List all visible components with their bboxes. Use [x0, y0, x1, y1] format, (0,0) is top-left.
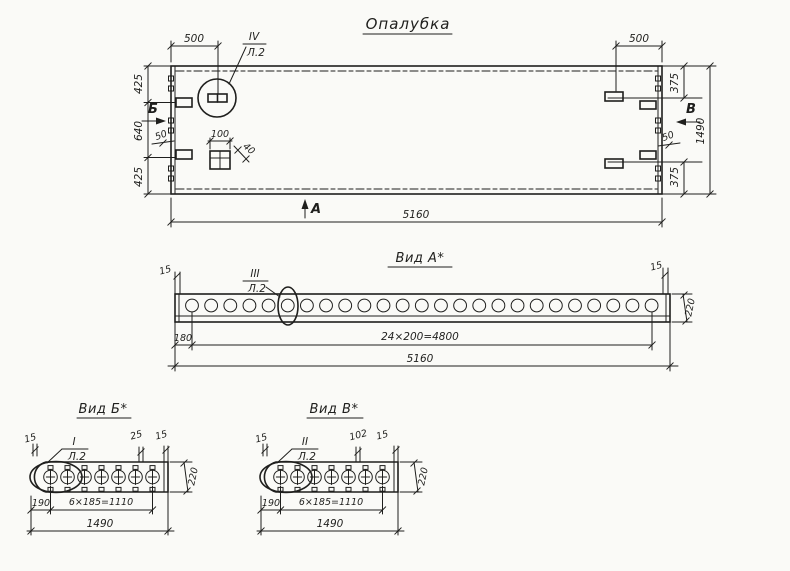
bolt-nub [116, 487, 121, 491]
view-a: Вид А* III Л.2 15 15 220 180 24×200=4800… [158, 251, 698, 365]
view-v-dim-102: 102 [348, 428, 368, 443]
view-marker-v-label: В [686, 102, 696, 117]
bolt-nub [133, 466, 138, 470]
hole [281, 299, 294, 312]
fixture-right-lower [605, 159, 623, 168]
dim-5160-plan: 5160 [403, 209, 430, 221]
dim-375-top: 375 [669, 73, 681, 93]
hole [262, 299, 275, 312]
callout-ii-sheet: Л.2 [297, 451, 316, 463]
hole [454, 299, 467, 312]
plan-view: IV Л.2 500 500 425 640 425 375 375 1490 … [133, 31, 707, 221]
view-a-holes [186, 299, 658, 312]
bolt-nub [380, 466, 385, 470]
bolt-nub [48, 466, 53, 470]
callout-i-number: I [72, 436, 75, 448]
hole [205, 299, 218, 312]
dim-640-mid: 640 [133, 121, 145, 141]
hole [473, 299, 486, 312]
view-v-title: Вид В* [310, 402, 359, 417]
dim-tick [683, 318, 689, 324]
dim-50-right: 50 [661, 129, 676, 143]
hole [626, 299, 639, 312]
bolt-nub [150, 466, 155, 470]
view-a-strip [175, 294, 670, 322]
view-v-dim-15-right: 15 [375, 429, 390, 443]
hole [339, 299, 352, 312]
hole [607, 299, 620, 312]
hole [320, 299, 333, 312]
view-a-dim-spacing: 24×200=4800 [381, 331, 459, 343]
bolt-nub [278, 466, 283, 470]
hole [243, 299, 256, 312]
fixture-left-upper [176, 98, 192, 107]
hole [358, 299, 371, 312]
dim-375-bottom: 375 [669, 167, 681, 187]
dim-tick [414, 488, 420, 494]
hole [377, 299, 390, 312]
bolt-nub [133, 487, 138, 491]
callout-iv-sheet: Л.2 [246, 47, 265, 59]
hole [186, 299, 199, 312]
fixture-right-lower-edge [640, 151, 656, 159]
hole [530, 299, 543, 312]
dim-line [266, 287, 280, 297]
bolt-nub [295, 466, 300, 470]
fixture-right-upper-edge [640, 101, 656, 109]
dim-1490-right: 1490 [695, 117, 707, 144]
hole [511, 299, 524, 312]
view-marker-b-arrow [156, 118, 166, 125]
hole [645, 299, 658, 312]
dim-500-left: 500 [184, 33, 204, 45]
view-b-dim-190: 190 [32, 498, 50, 509]
view-v-holes [274, 466, 390, 492]
dim-tick [681, 292, 687, 298]
view-b-holes [44, 466, 160, 492]
callout-iii-number: III [250, 268, 259, 280]
view-b-dim-220: 220 [186, 466, 201, 486]
bolt-nub [346, 466, 351, 470]
view-b-dim-1490: 1490 [87, 518, 114, 530]
bolt-nub [99, 466, 104, 470]
dim-500-right: 500 [629, 33, 649, 45]
view-marker-a-arrow [302, 199, 309, 209]
fixture-left-lower [176, 150, 192, 159]
dim-425-bottom: 425 [133, 167, 145, 187]
bolt-nub [363, 487, 368, 491]
bolt-nub [82, 466, 87, 470]
view-a-dim-220: 220 [683, 297, 698, 317]
view-a-dim-15-left: 15 [158, 264, 173, 278]
bolt-nub [65, 466, 70, 470]
drawing-title: Опалубка [366, 15, 451, 33]
hole [415, 299, 428, 312]
hole [569, 299, 582, 312]
bolt-nub [363, 466, 368, 470]
view-v-dim-15-left: 15 [254, 432, 269, 446]
bolt-nub [82, 487, 87, 491]
fixture-right-upper [605, 92, 623, 101]
view-v-dim-190: 190 [262, 498, 280, 509]
bolt-nub [329, 487, 334, 491]
formwork-outline [171, 66, 662, 194]
dim-425-top: 425 [133, 74, 145, 94]
view-marker-a-label: А [310, 202, 321, 217]
bolt-nub [312, 487, 317, 491]
dim-50-left: 50 [154, 128, 169, 142]
view-v-dim-1490: 1490 [317, 518, 344, 530]
view-a-dim-180: 180 [174, 333, 192, 344]
hole [492, 299, 505, 312]
bolt-nub [99, 487, 104, 491]
drawing-canvas: Опалубка IV Л.2 500 500 425 640 425 375 … [0, 0, 790, 571]
linework [27, 41, 716, 535]
hole [549, 299, 562, 312]
bolt-nub [346, 487, 351, 491]
view-v-dim-220: 220 [416, 466, 431, 486]
callout-iii-sheet: Л.2 [247, 283, 266, 295]
view-a-dim-15-right: 15 [649, 260, 664, 274]
bolt-nub [116, 466, 121, 470]
dim-tick [184, 488, 190, 494]
dim-100: 100 [211, 129, 229, 140]
view-a-title: Вид А* [396, 251, 445, 266]
view-b-dim-15-right: 15 [154, 429, 169, 443]
view-b-dim-spacing: 6×185=1110 [69, 497, 133, 508]
callout-i-sheet: Л.2 [67, 451, 86, 463]
view-marker-v-arrow [676, 119, 686, 126]
bolt-nub [312, 466, 317, 470]
drawing-sheet: Опалубка IV Л.2 500 500 425 640 425 375 … [0, 0, 790, 571]
view-b-dim-15-left: 15 [23, 432, 38, 446]
view-a-dim-5160: 5160 [407, 353, 434, 365]
hole [588, 299, 601, 312]
bolt-nub [329, 466, 334, 470]
callout-ii-number: II [302, 436, 308, 448]
view-v-dim-spacing: 6×185=1110 [299, 497, 363, 508]
hole [224, 299, 237, 312]
view-b-title: Вид Б* [79, 402, 128, 417]
hole [435, 299, 448, 312]
hole [396, 299, 409, 312]
hole [301, 299, 314, 312]
callout-iv-number: IV [249, 31, 260, 43]
view-marker-b-label: Б [148, 102, 158, 117]
view-b-dim-25: 25 [129, 429, 144, 443]
